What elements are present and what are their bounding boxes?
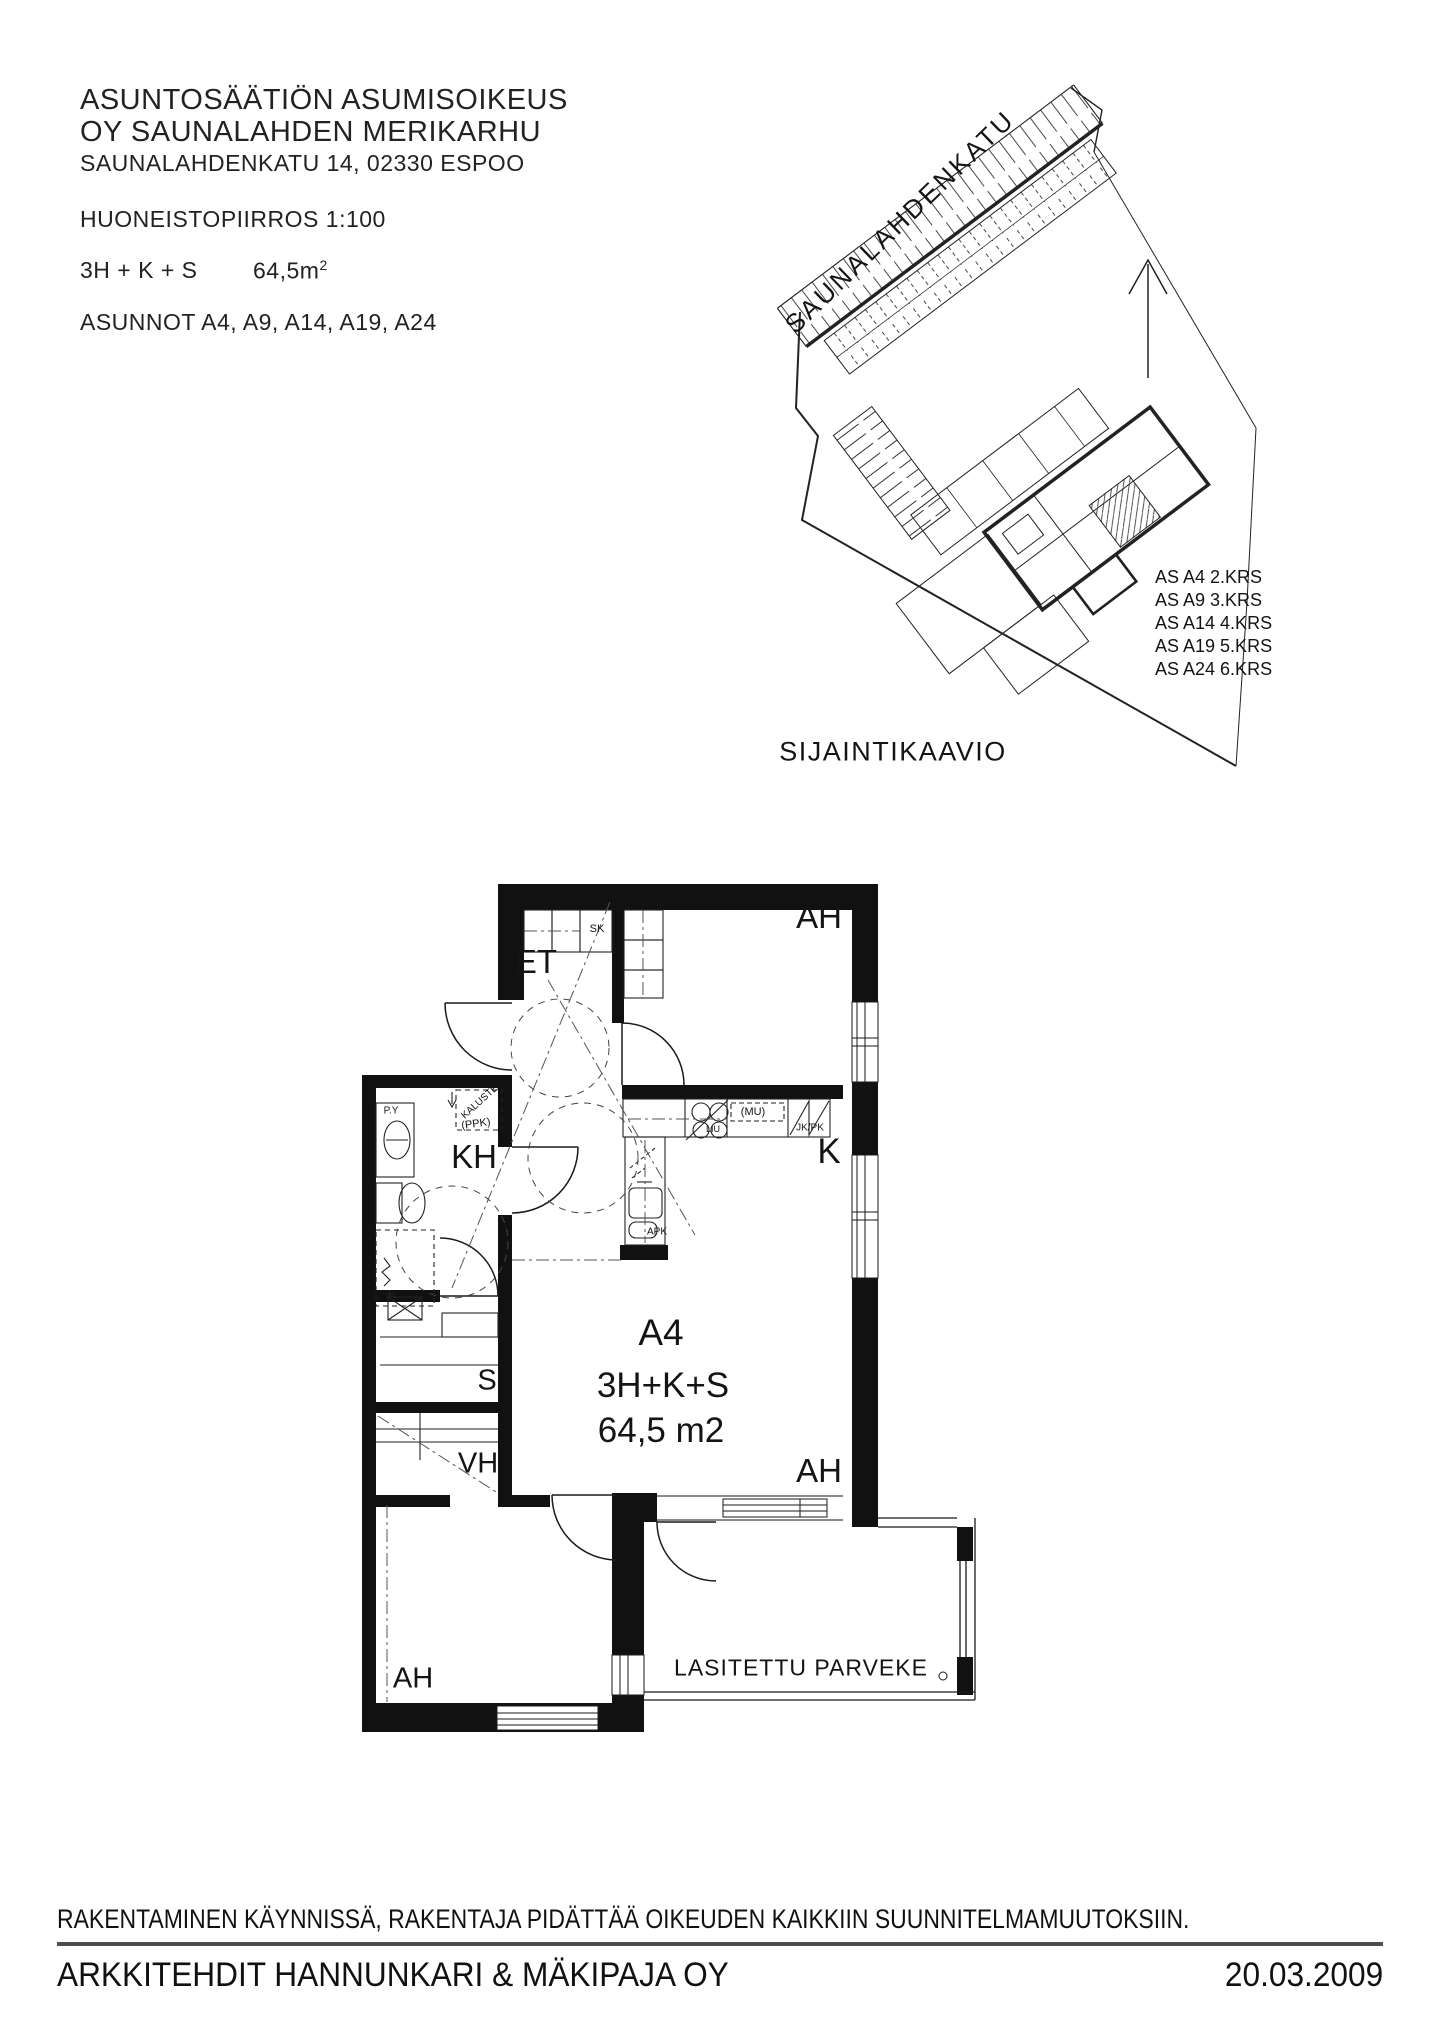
balcony-drain [939, 1672, 947, 1680]
entry-door [445, 1003, 512, 1070]
project-title-line2: OY SAUNALAHDEN MERIKARHU [80, 116, 541, 149]
apartment-type-header: 3H + K + S [80, 257, 198, 284]
drawing-type: HUONEISTOPIIRROS 1:100 [80, 206, 386, 233]
wall-segment [362, 1402, 512, 1413]
room-label-vh: VH [458, 1448, 498, 1481]
floor-key-item: AS A14 4.KRS [1155, 612, 1272, 635]
balcony-bottom-edge [644, 1692, 975, 1700]
turning-circle [528, 1103, 638, 1213]
stairwell-hatch [1089, 476, 1160, 548]
area-value: 64,5m [253, 258, 319, 284]
building-core [1002, 514, 1043, 554]
fixture-label-mu: (MU) [741, 1106, 765, 1118]
room-label-ah-top: AH [796, 898, 842, 936]
drawing-date-text: 20.03.2009 [1225, 1956, 1383, 1995]
building-wing [1073, 554, 1137, 614]
door-kh [512, 1147, 578, 1213]
wall-segment [852, 1082, 878, 1155]
sauna-fixtures [380, 1297, 498, 1365]
walls [362, 884, 973, 1732]
fixture-label-jkpk: JK/PK [796, 1123, 824, 1134]
site-boundary-left-bottom [796, 312, 1236, 766]
balcony-label: LASITETTU PARVEKE [674, 1655, 928, 1682]
wall-segment [498, 1495, 550, 1507]
wall-segment [612, 910, 624, 1023]
wall-segment [498, 1413, 512, 1495]
door-ah-top [622, 1023, 684, 1085]
sauna-bench-upper [442, 1313, 498, 1337]
wall-segment [362, 1495, 450, 1507]
wc-tank [376, 1183, 402, 1223]
fixture-label-liu: LIU [706, 1124, 720, 1134]
wall-segment [620, 1245, 668, 1260]
building-row [911, 388, 1109, 554]
room-label-et: ET [515, 943, 557, 981]
room-label-ah-bottom-right: AH [796, 1452, 842, 1490]
architectural-drawing-page: { "header": { "line1": "ASUNTOSÄÄTIÖN AS… [0, 0, 1440, 2036]
project-address: SAUNALAHDENKATU 14, 02330 ESPOO [80, 150, 525, 177]
floor-key-item: AS A19 5.KRS [1155, 635, 1272, 658]
door-balcony [657, 1522, 716, 1581]
wall-segment [498, 1290, 512, 1402]
room-label-kh: KH [451, 1138, 497, 1176]
area-sup: 2 [319, 257, 327, 273]
wc-bowl [399, 1183, 425, 1223]
floor-key-item: AS A9 3.KRS [1155, 589, 1272, 612]
north-arrow-icon [1129, 260, 1167, 378]
counter-line [628, 1119, 727, 1243]
floor-plan [362, 884, 975, 1732]
street-band [777, 85, 1131, 385]
turning-circle [511, 999, 609, 1097]
balcony-post [957, 1657, 973, 1695]
wall-segment [852, 910, 878, 1002]
drawing-date: 20.03.2009 [1213, 1956, 1383, 1995]
wall-segment [498, 1088, 512, 1147]
neighbor-building-2 [984, 595, 1089, 694]
apartment-area: 64,5 m2 [598, 1411, 724, 1451]
architect-name: ARKKITEHDIT HANNUNKARI & MÄKIPAJA OY [57, 1956, 779, 1995]
disclaimer-text: RAKENTAMINEN KÄYNNISSÄ, RAKENTAJA PIDÄTT… [57, 1904, 1189, 1935]
door-ah-bottom [552, 1495, 617, 1560]
apartment-type: 3H+K+S [597, 1366, 729, 1406]
window-ah-top [852, 1002, 878, 1082]
apartment-id: A4 [638, 1312, 683, 1354]
balcony-glazing-right [960, 1561, 966, 1657]
apartment-area-header: 64,5m2 [253, 257, 328, 285]
window-living-to-balcony [657, 1496, 843, 1520]
room-label-ah-bottom-left: AH [393, 1663, 433, 1696]
sauna-benches [380, 1337, 498, 1365]
footer-rule [57, 1942, 1383, 1946]
site-diagram-title: SIJAINTIKAAVIO [779, 737, 1007, 768]
garage-strip [833, 407, 950, 540]
turning-circle [396, 1186, 508, 1298]
room-label-s: S [477, 1365, 496, 1398]
project-title-line1: ASUNTOSÄÄTIÖN ASUMISOIKEUS [80, 84, 568, 117]
wall-segment [852, 1278, 878, 1527]
fixture-label-py: P.Y [384, 1106, 399, 1117]
apartments-list: ASUNNOT A4, A9, A14, A19, A24 [80, 309, 437, 336]
disclaimer: RAKENTAMINEN KÄYNNISSÄ, RAKENTAJA PIDÄTT… [57, 1904, 1389, 1935]
turning-circles [396, 999, 638, 1298]
fixture-label-sk: SK [590, 923, 605, 935]
floor-key-item: AS A4 2.KRS [1155, 566, 1272, 589]
wall-segment [376, 1290, 440, 1302]
window-ah-bottom [497, 1706, 598, 1730]
wall-segment [622, 1085, 843, 1099]
room-label-k: K [817, 1132, 840, 1172]
balcony-post [957, 1527, 973, 1561]
window-balcony-side [612, 1655, 644, 1695]
architect-name-text: ARKKITEHDIT HANNUNKARI & MÄKIPAJA OY [57, 1956, 729, 1995]
wall-segment [498, 1215, 512, 1290]
neighbor-building-1 [896, 534, 1041, 673]
fixture-label-apk: APK [647, 1227, 667, 1238]
window-kitchen [852, 1155, 878, 1278]
balcony-top-edge [878, 1518, 957, 1527]
wall-segment [612, 1493, 657, 1522]
floor-key-item: AS A24 6.KRS [1155, 658, 1272, 681]
drawing-canvas [0, 0, 1440, 2036]
floor-key-list: AS A4 2.KRS AS A9 3.KRS AS A14 4.KRS AS … [1155, 566, 1272, 681]
slope-arrow [448, 1092, 456, 1107]
